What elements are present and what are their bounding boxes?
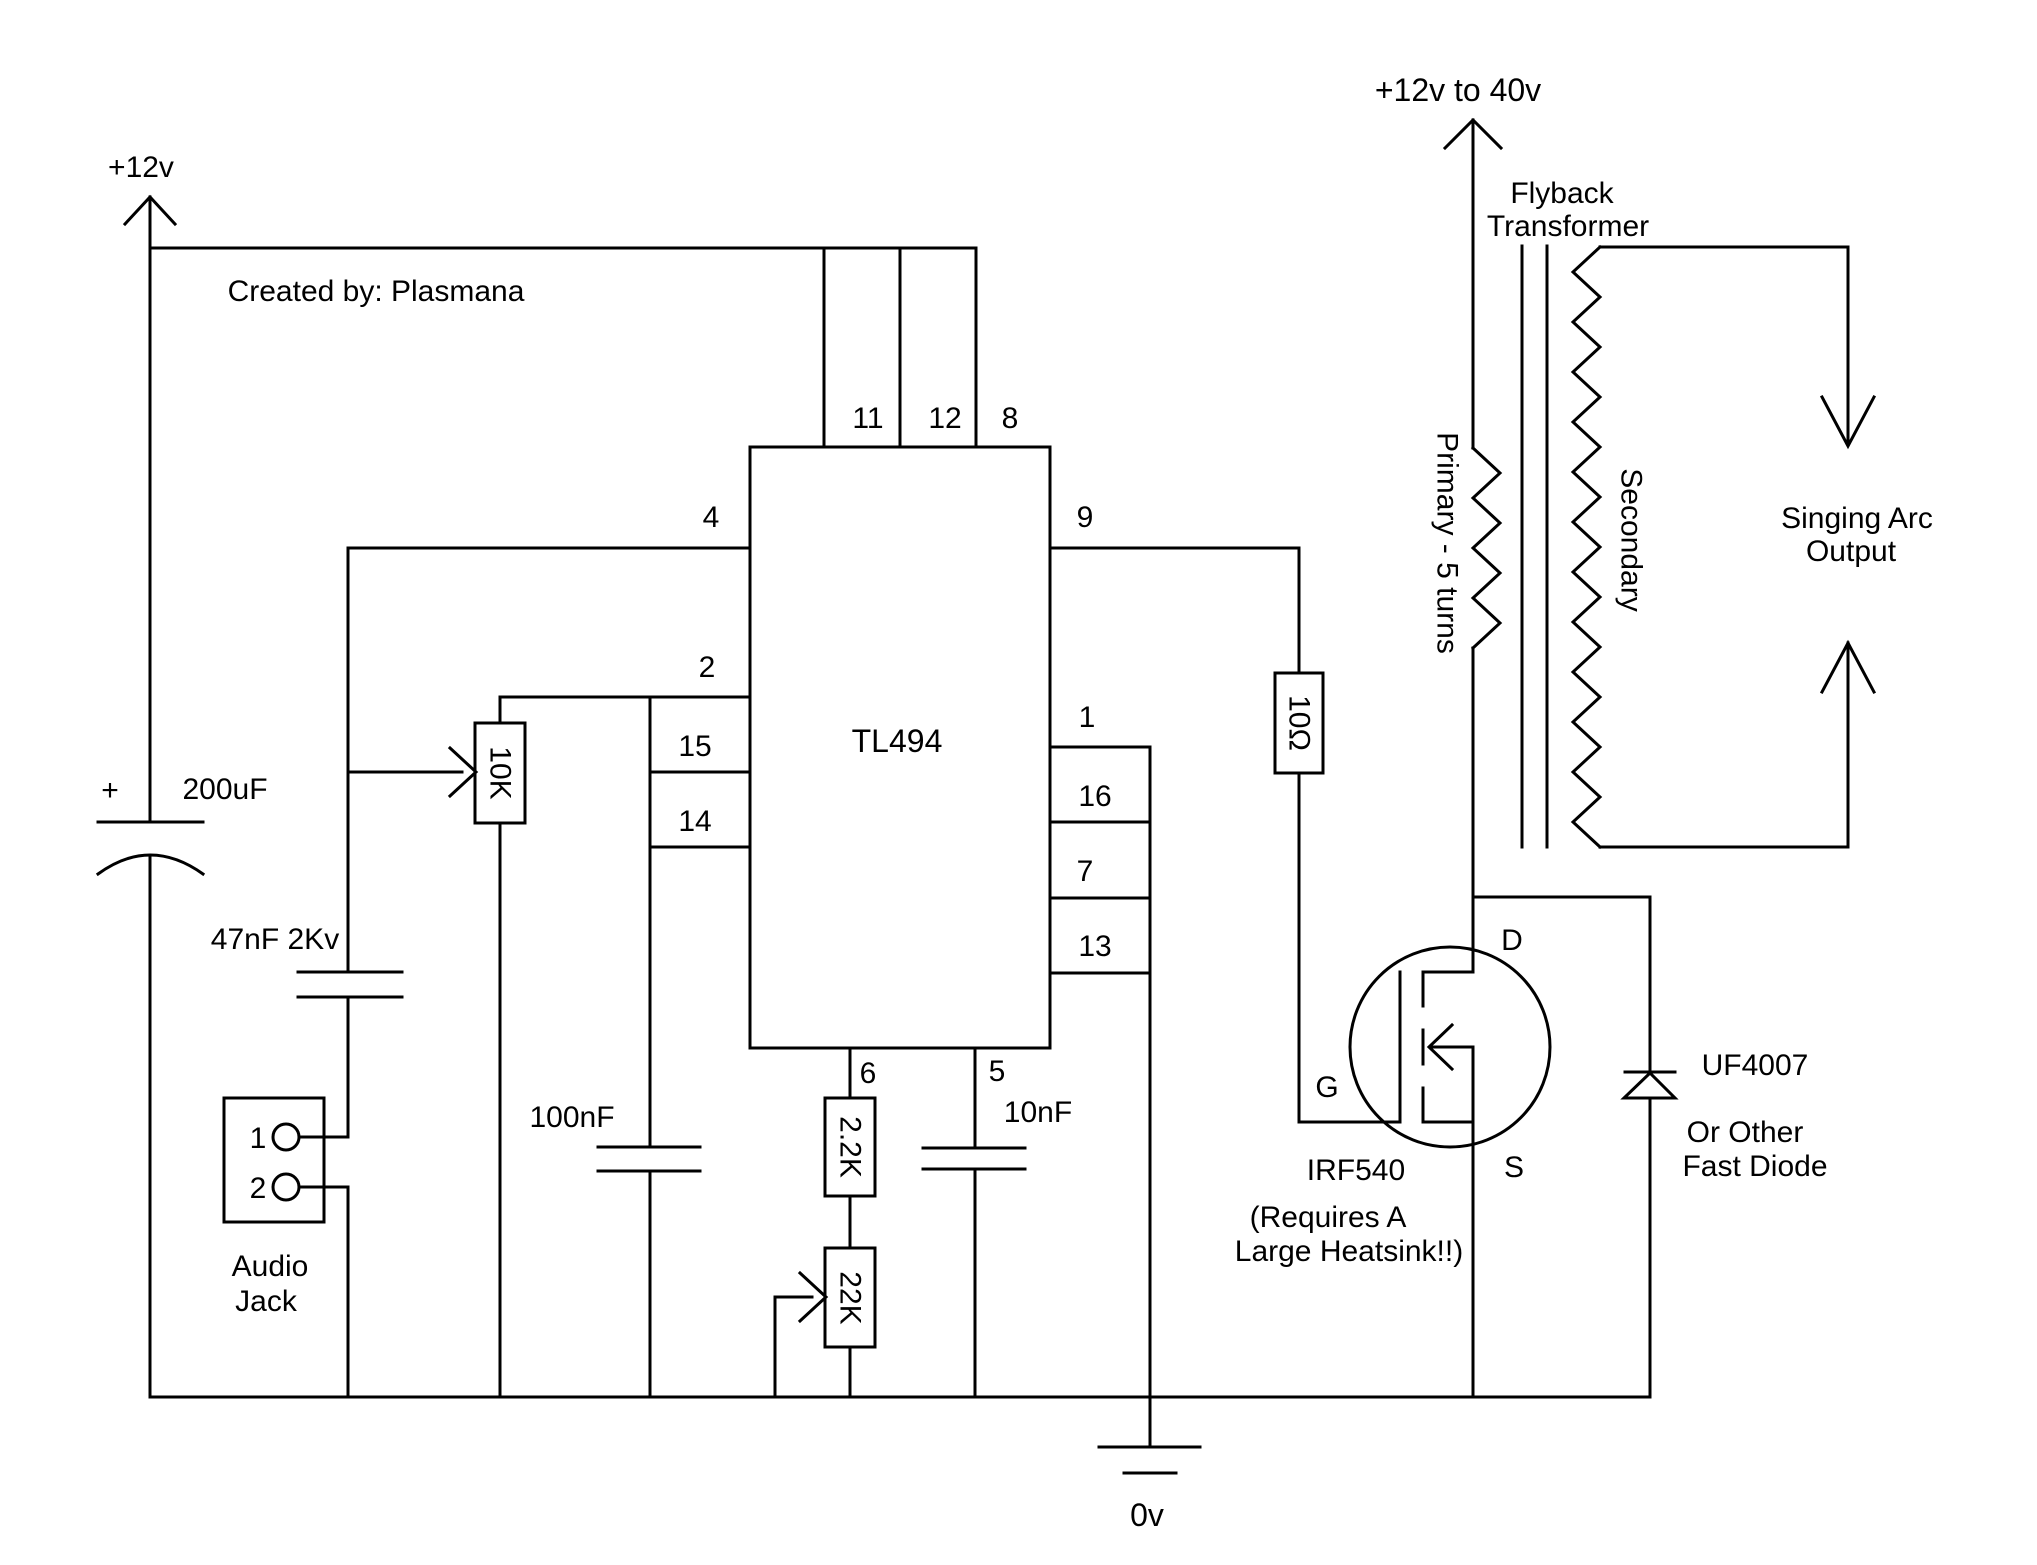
ic-pin7-label: 7 (1077, 855, 1094, 888)
res-10ohm-value: 10Ω (1283, 695, 1316, 751)
ic-pin15-label: 15 (678, 730, 711, 763)
cap-200uF-value: 200uF (182, 773, 267, 806)
cap-47nF-value: 47nF 2Kv (211, 923, 339, 956)
diode-name-label: UF4007 (1702, 1049, 1809, 1082)
primary-winding (1473, 448, 1500, 648)
schematic-page: +12v Created by: Plasmana + 200uF 47nF 2… (0, 0, 2037, 1565)
jack-label-line1: Audio (232, 1250, 309, 1283)
pot-22K-value: 22K (834, 1271, 867, 1324)
diode-note-line2: Fast Diode (1682, 1150, 1827, 1183)
ic-pin1-label: 1 (1079, 701, 1096, 734)
jack-label-line2: Jack (235, 1285, 298, 1318)
output-label-line2: Output (1806, 535, 1897, 568)
pot-10K-value: 10K (484, 746, 517, 799)
jack-pin1-label: 1 (250, 1122, 267, 1155)
ic-pin12-label: 12 (928, 402, 961, 435)
cap-100nF-value: 100nF (529, 1101, 614, 1134)
supply-left-label: +12v (108, 151, 174, 184)
right-supply: +12v to 40v (1375, 72, 1541, 448)
flyback-transformer: Flyback Transformer Primary - 5 turns Se… (1431, 177, 1650, 847)
transformer-label-line1: Flyback (1510, 177, 1614, 210)
capacitor-10nF: 10nF (923, 1048, 1072, 1397)
resistor-10ohm: 10Ω (1275, 548, 1400, 1122)
ic-name-label: TL494 (852, 723, 943, 759)
mosfet-drain-label: D (1501, 924, 1523, 957)
jack-pin2-label: 2 (250, 1172, 267, 1205)
ic-pin13-label: 13 (1078, 930, 1111, 963)
mosfet-source-label: S (1504, 1151, 1524, 1184)
cap-200uF-polarity: + (101, 774, 119, 807)
transformer-label-line2: Transformer (1487, 210, 1649, 243)
ic-pin4-label: 4 (703, 501, 720, 534)
schematic-canvas: +12v Created by: Plasmana + 200uF 47nF 2… (0, 0, 2037, 1565)
mosfet-note-line1: (Requires A (1250, 1201, 1407, 1234)
created-by-label: Created by: Plasmana (228, 275, 525, 308)
secondary-winding (1573, 247, 1600, 847)
cap-10nF-value: 10nF (1004, 1096, 1072, 1129)
ground-rail: 0v (150, 1397, 1650, 1533)
secondary-winding-label: Secondary (1615, 468, 1648, 611)
ground-label: 0v (1130, 1497, 1164, 1533)
ic-pin14-label: 14 (678, 805, 711, 838)
primary-winding-label: Primary - 5 turns (1431, 432, 1464, 654)
res-2.2K-value: 2.2K (834, 1116, 867, 1178)
ic-pin9-label: 9 (1077, 501, 1094, 534)
ic-pin5-label: 5 (989, 1055, 1006, 1088)
mosfet-note-line2: Large Heatsink!!) (1235, 1235, 1463, 1268)
ic-pin16-label: 16 (1078, 780, 1111, 813)
capacitor-47nF: 47nF 2Kv (211, 548, 402, 1137)
diode-note-line1: Or Other (1687, 1116, 1804, 1149)
arc-output: Singing Arc Output (1600, 247, 1933, 847)
mosfet-name-label: IRF540 (1307, 1154, 1405, 1187)
diode-triangle-icon (1624, 1073, 1675, 1098)
ic-pin6-label: 6 (860, 1057, 877, 1090)
ic-pin11-label: 11 (852, 402, 883, 435)
potentiometer-10K: 10K (348, 697, 525, 1397)
supply-right-label: +12v to 40v (1375, 72, 1541, 108)
diode-uf4007: UF4007 Or Other Fast Diode (1473, 897, 1828, 1397)
potentiometer-22K: 22K (775, 1196, 875, 1397)
audio-jack: 1 2 Audio Jack (224, 1098, 348, 1397)
ic-pin8-label: 8 (1002, 402, 1019, 435)
left-supply-rail: +12v (108, 151, 175, 822)
output-label-line1: Singing Arc (1781, 502, 1933, 535)
ic-pin2-label: 2 (699, 651, 716, 684)
mosfet-gate-label: G (1315, 1071, 1338, 1104)
capacitor-100nF: 100nF (529, 847, 700, 1397)
mosfet-irf540: G D S IRF540 (Requires A Large Heatsink!… (1235, 648, 1550, 1397)
